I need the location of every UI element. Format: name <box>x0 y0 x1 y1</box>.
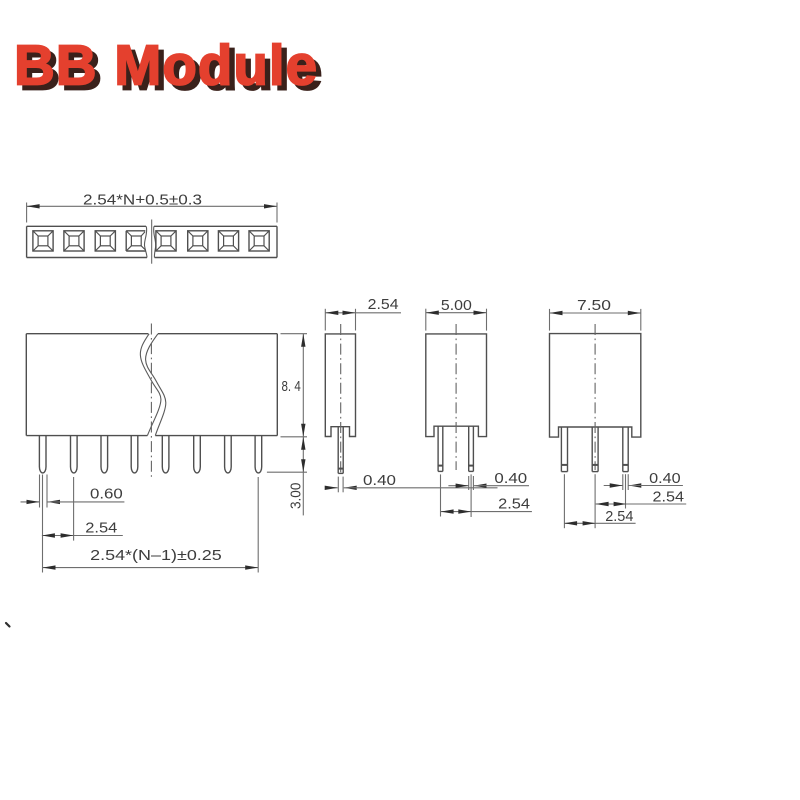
svg-text:8. 4: 8. 4 <box>282 379 301 395</box>
svg-text:2.54: 2.54 <box>498 496 530 512</box>
svg-text:2.54: 2.54 <box>605 509 633 525</box>
svg-text:0.40: 0.40 <box>494 471 527 487</box>
svg-text:5.00: 5.00 <box>441 298 472 314</box>
svg-text:0.40: 0.40 <box>649 471 681 487</box>
svg-text:2.54*(N–1)±0.25: 2.54*(N–1)±0.25 <box>90 548 222 564</box>
svg-text:7.50: 7.50 <box>577 298 611 314</box>
svg-text:2.54: 2.54 <box>85 520 117 536</box>
svg-text:3.00: 3.00 <box>289 483 305 509</box>
svg-text:2.54: 2.54 <box>368 297 399 313</box>
svg-text:0.60: 0.60 <box>90 486 123 502</box>
svg-text:2.54*N+0.5±0.3: 2.54*N+0.5±0.3 <box>83 192 202 208</box>
svg-text:0.40: 0.40 <box>363 473 396 489</box>
svg-text:2.54: 2.54 <box>653 489 685 505</box>
svg-text:BB Module: BB Module <box>14 34 317 97</box>
